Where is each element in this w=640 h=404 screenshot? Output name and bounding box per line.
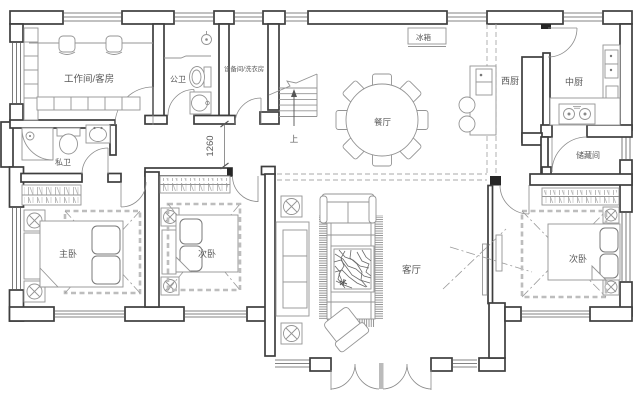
svg-text:西厨: 西厨 [501,76,519,86]
svg-text:私卫: 私卫 [55,158,71,167]
svg-text:冰箱: 冰箱 [416,32,431,42]
svg-text:次卧: 次卧 [198,248,216,259]
svg-text:储藏间: 储藏间 [576,150,600,160]
svg-text:客厅: 客厅 [402,264,422,276]
svg-text:中厨: 中厨 [565,76,583,87]
svg-text:餐厅: 餐厅 [374,117,392,127]
svg-text:上: 上 [290,134,299,144]
svg-text:公卫: 公卫 [170,75,186,84]
svg-text:次卧: 次卧 [569,253,587,264]
svg-text:1260: 1260 [205,135,216,156]
svg-text:设备间/洗衣房: 设备间/洗衣房 [224,64,264,73]
svg-text:主卧: 主卧 [59,248,77,259]
svg-text:工作间/客房: 工作间/客房 [64,73,114,85]
